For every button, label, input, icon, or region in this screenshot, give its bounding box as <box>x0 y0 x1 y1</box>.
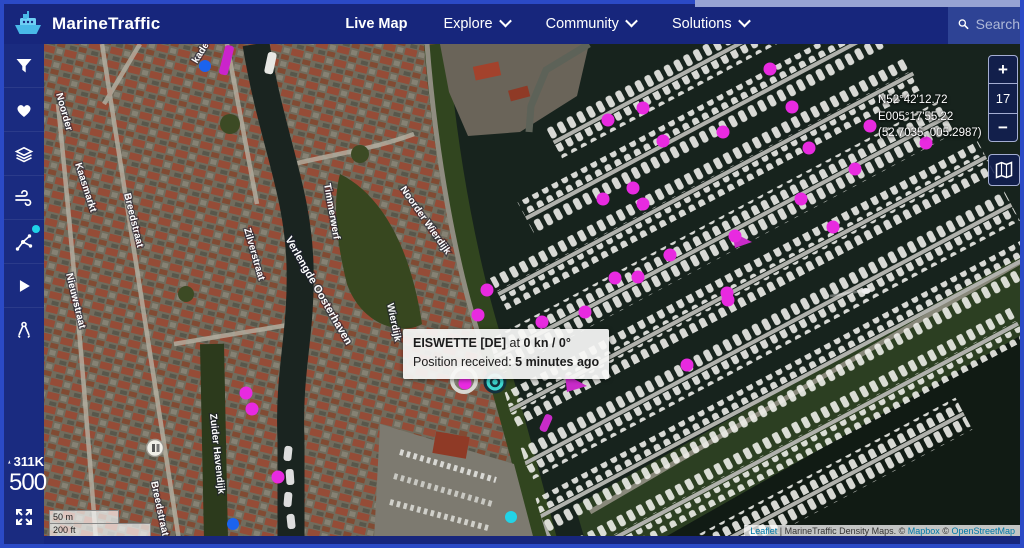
route-network-icon <box>14 232 34 252</box>
bottom-frame-strip <box>4 536 1020 544</box>
vessel-marker[interactable] <box>795 193 808 206</box>
chevron-down-icon <box>625 14 638 27</box>
coordinates-readout: N52°42'12.72 E005°17'55.22 (52.7035, 005… <box>878 92 982 142</box>
mapbox-link[interactable]: Mapbox <box>908 526 940 536</box>
layers-button[interactable] <box>4 132 44 176</box>
main-nav: Live Map Explore Community Solutions <box>345 16 748 32</box>
vessel-marker[interactable] <box>597 193 610 206</box>
vessel-marker[interactable] <box>609 272 622 285</box>
nav-community[interactable]: Community <box>546 16 636 32</box>
marinetraffic-logo-icon <box>12 9 44 39</box>
nav-live-map[interactable]: Live Map <box>345 16 407 32</box>
weather-button[interactable] <box>4 176 44 220</box>
search-placeholder: Search <box>976 16 1020 32</box>
notification-badge <box>32 225 40 233</box>
zoom-out-button[interactable]: − <box>988 113 1018 142</box>
satellite-map[interactable]: NoorderkadeBreedstraatZilverstraatKaasma… <box>44 44 1020 540</box>
live-map[interactable]: NoorderkadeBreedstraatZilverstraatKaasma… <box>44 44 1020 540</box>
vessel-marker[interactable] <box>849 163 862 176</box>
map-scale: 50 m 200 ft <box>49 510 151 537</box>
left-toolbar: 311K 500 <box>4 44 44 544</box>
vessel-marker[interactable] <box>602 114 615 127</box>
vessel-marker[interactable] <box>764 63 777 76</box>
vessel-marker[interactable] <box>246 403 259 416</box>
vessel-marker[interactable] <box>637 198 650 211</box>
vessel-marker[interactable] <box>632 271 645 284</box>
favorites-button[interactable] <box>4 88 44 132</box>
filters-button[interactable] <box>4 44 44 88</box>
poi-marker[interactable] <box>147 440 164 457</box>
vessel-marker[interactable] <box>717 126 730 139</box>
scale-metric: 50 m <box>49 510 119 523</box>
vessel-marker[interactable] <box>722 294 735 307</box>
osm-link[interactable]: OpenStreetMap <box>951 526 1015 536</box>
filter-funnel-icon <box>14 56 34 76</box>
coordinates-decimal: (52.7035, 005.2987) <box>878 125 982 142</box>
chevron-down-icon <box>499 14 512 27</box>
tooltip-line1: EISWETTE [DE] at 0 kn / 0° <box>413 334 599 353</box>
vessel-count-value: 311K <box>14 454 44 469</box>
search-icon <box>958 16 969 32</box>
play-icon <box>15 277 33 295</box>
vessel-marker[interactable] <box>627 182 640 195</box>
browser-edge-artifact <box>695 0 1020 7</box>
zoom-level-indicator: 17 <box>988 84 1018 113</box>
vessel-marker[interactable] <box>786 101 799 114</box>
expand-arrows-icon <box>12 505 36 529</box>
voyage-planner-button[interactable] <box>4 220 44 264</box>
vessel-icon <box>7 455 12 469</box>
vessel-marker[interactable] <box>240 387 253 400</box>
brand-logo[interactable]: MarineTraffic <box>4 9 222 39</box>
leaflet-link[interactable]: Leaflet <box>750 526 777 536</box>
heart-icon <box>14 100 34 120</box>
vessel-marker[interactable] <box>827 221 840 234</box>
vessel-marker[interactable] <box>657 135 670 148</box>
vessel-marker[interactable] <box>481 284 494 297</box>
search-input[interactable]: Search <box>948 4 1020 44</box>
vessel-marker[interactable] <box>637 102 650 115</box>
chevron-down-icon <box>738 14 751 27</box>
vessel-marker[interactable] <box>803 142 816 155</box>
vessel-tooltip[interactable]: EISWETTE [DE] at 0 kn / 0° Position rece… <box>403 329 609 379</box>
fullscreen-button[interactable] <box>12 505 36 534</box>
zoom-controls: + 17 − <box>988 55 1018 142</box>
vessel-counter[interactable]: 311K <box>4 454 44 469</box>
refresh-counter[interactable]: 500 <box>4 469 44 497</box>
brand-name: MarineTraffic <box>52 14 160 34</box>
coordinates-lon: E005°17'55.22 <box>878 109 982 126</box>
vessel-marker[interactable] <box>729 230 742 243</box>
zoom-in-button[interactable]: + <box>988 55 1018 84</box>
tooltip-line2: Position received: 5 minutes ago <box>413 353 599 372</box>
nav-solutions[interactable]: Solutions <box>672 16 749 32</box>
coordinates-lat: N52°42'12.72 <box>878 92 982 109</box>
vessel-marker[interactable] <box>272 471 285 484</box>
playback-button[interactable] <box>4 264 44 308</box>
vessel-marker[interactable] <box>681 359 694 372</box>
refresh-count-value: 500 <box>9 469 46 497</box>
layers-icon <box>14 144 34 164</box>
measure-button[interactable] <box>4 308 44 351</box>
wind-icon <box>14 188 34 208</box>
top-navbar: MarineTraffic Live Map Explore Community… <box>4 4 1020 44</box>
position-received-value: 5 minutes ago <box>515 355 599 369</box>
vessel-marker[interactable] <box>579 306 592 319</box>
vessel-marker[interactable] <box>472 309 485 322</box>
nav-explore[interactable]: Explore <box>443 16 509 32</box>
vessel-marker[interactable] <box>864 120 877 133</box>
vessel-name: EISWETTE [DE] <box>413 336 506 350</box>
vessel-marker[interactable] <box>505 511 517 523</box>
map-style-button[interactable] <box>988 154 1020 186</box>
marinetraffic-app: MarineTraffic Live Map Explore Community… <box>0 0 1024 548</box>
vessel-marker[interactable] <box>227 518 239 530</box>
vessel-marker[interactable] <box>664 249 677 262</box>
vessel-speed-course: 0 kn / 0° <box>523 336 570 350</box>
vessel-marker[interactable] <box>536 316 549 329</box>
scale-imperial: 200 ft <box>49 523 151 537</box>
folded-map-icon <box>994 160 1014 180</box>
dividers-compass-icon <box>14 320 34 340</box>
